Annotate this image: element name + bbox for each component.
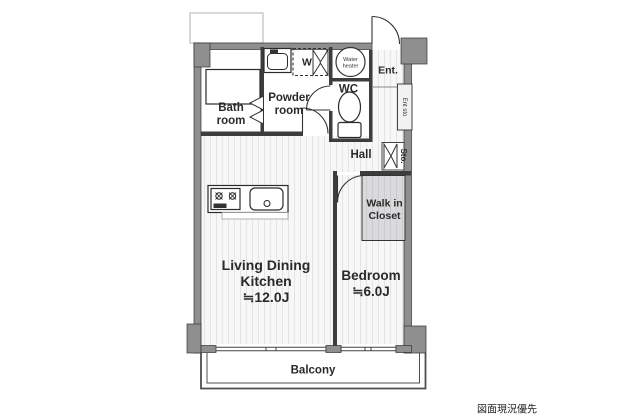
washbasin [264,49,291,73]
bath-room-label-line2: room [217,115,246,127]
powder-room-label-line2: room [275,105,304,117]
toilet [338,92,361,138]
storage-label: Sto. [399,148,408,163]
entrance-door [372,17,400,45]
entrance-storage-label: Ent sto [401,98,407,117]
ldk-label-line1: Living Dining [222,257,311,273]
sliding-windows [215,344,396,353]
bedroom-label: Bedroom [341,268,400,283]
wc-label: WC [339,84,358,96]
powder-room-label-line1: Powder [268,92,310,104]
corridor-outline [190,13,263,43]
water-heater-label-line2: heater [343,64,359,70]
floor-plan: Bath room Powder room W Water heater Ent… [0,0,628,420]
hall-label: Hall [350,149,371,161]
bedroom-size-label: ≒6.0J [352,284,390,299]
walk-in-closet-label-line1: Walk in [366,198,402,210]
balcony-label: Balcony [291,365,336,377]
plan-note: 図面現況優先 [477,403,537,416]
washer-label: W [302,57,312,69]
heater-closet-bifold-door [313,50,328,75]
entrance-label: Ent. [378,65,398,77]
bath-room-label-line1: Bath [218,102,244,114]
ldk-size-label: ≒12.0J [243,289,290,305]
powder-room-door [303,108,329,134]
floor-plan-drawing: Bath room Powder room W Water heater Ent… [0,0,628,420]
bathtub [206,70,260,105]
water-heater-label-line1: Water [343,57,358,63]
ldk-label-line2: Kitchen [240,273,291,289]
walk-in-closet-label-line2: Closet [368,210,401,222]
wc-door [307,86,331,110]
